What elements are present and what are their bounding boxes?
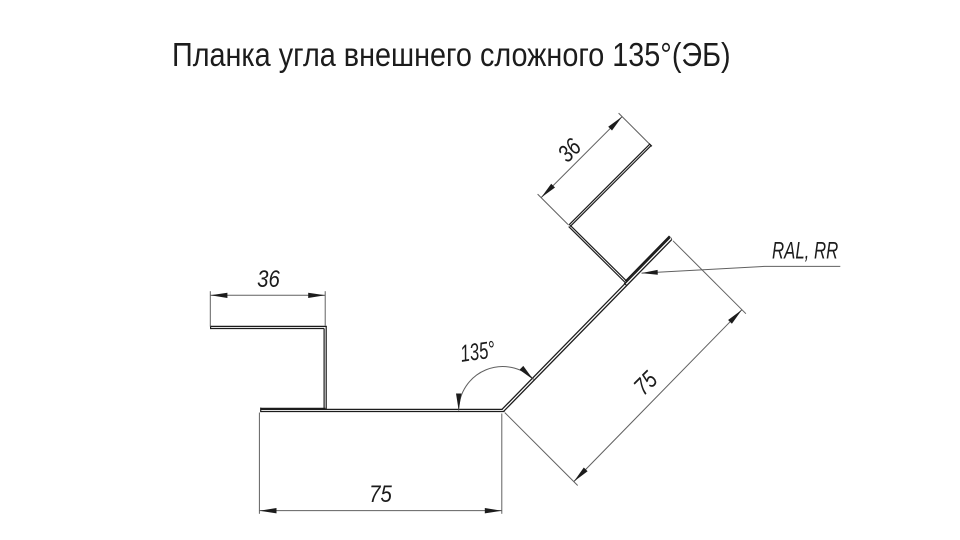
svg-text:Планка угла внешнего сложного: Планка угла внешнего сложного 135°(ЭБ) [172,36,731,73]
svg-text:36: 36 [257,265,280,292]
svg-text:135°: 135° [459,336,497,367]
svg-text:75: 75 [369,480,392,507]
svg-text:RAL, RR: RAL, RR [772,238,838,265]
